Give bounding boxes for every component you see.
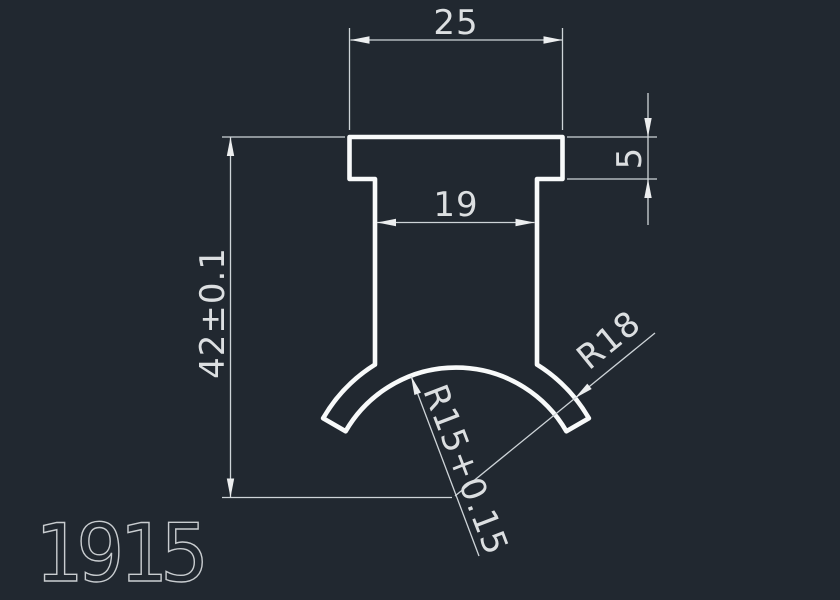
dim-arrow-left	[377, 219, 396, 226]
dim-inner-radius: R15+0.15	[411, 376, 516, 561]
dim-arrow-up	[644, 179, 651, 198]
dim-arrow-up	[227, 137, 234, 156]
radius-outer-arrow	[575, 384, 592, 399]
dim-arrow-down	[227, 479, 234, 498]
dim-flange-width: 25	[350, 3, 563, 130]
dim-outer-radius-label: R18	[569, 303, 648, 378]
dim-overall-height: 42±0.1	[193, 137, 452, 498]
dim-overall-height-label: 42±0.1	[193, 247, 233, 379]
dim-arrow-down	[644, 118, 651, 137]
dim-arrow-left	[351, 36, 370, 43]
dim-inner-radius-label: R15+0.15	[415, 379, 517, 561]
dim-stem-width-label: 19	[433, 185, 478, 225]
dim-flange-width-label: 25	[433, 3, 478, 43]
profile	[323, 137, 589, 431]
dim-flange-thickness-label: 5	[610, 147, 650, 170]
dim-flange-thickness: 5	[567, 93, 657, 225]
profile-outline	[323, 137, 589, 431]
cad-viewport: 25 19 5 42±0.1 R18 R15+0.15 1915	[0, 0, 840, 600]
part-number-label: 1915	[34, 507, 203, 600]
cad-drawing: 25 19 5 42±0.1 R18 R15+0.15 1915	[0, 0, 840, 600]
dim-arrow-right	[516, 219, 535, 226]
dim-arrow-right	[544, 36, 563, 43]
dim-stem-width: 19	[377, 185, 535, 226]
